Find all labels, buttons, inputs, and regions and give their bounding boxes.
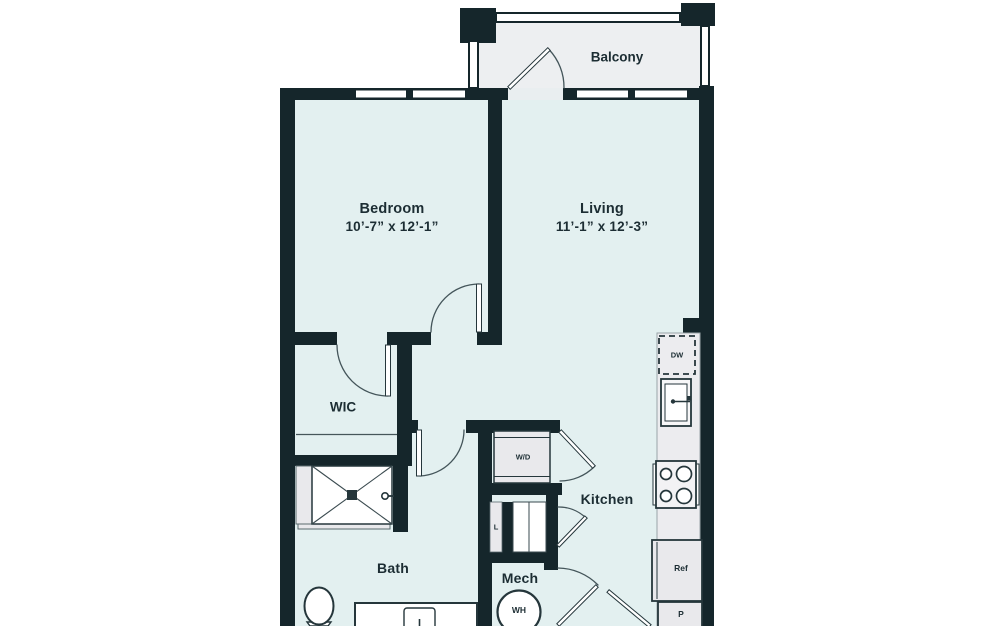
- wic-label: WIC: [330, 400, 356, 415]
- living-label: Living: [556, 201, 648, 218]
- floorplan-graphics: [0, 0, 998, 626]
- bedroom-window: [356, 88, 465, 100]
- floorplan-canvas: Balcony Bedroom 10’-7” x 12’-1” Living 1…: [0, 0, 998, 626]
- wall-top: [280, 88, 356, 100]
- washer-dryer-label: W/D: [516, 453, 531, 462]
- balcony-right-window: [701, 26, 709, 86]
- burner: [677, 489, 692, 504]
- wall-left: [280, 88, 295, 626]
- living-window: [577, 88, 687, 100]
- living-dimensions: 11’-1” x 12’-3”: [556, 218, 648, 235]
- linen-closet-label: L: [494, 523, 499, 532]
- living-label-block: Living 11’-1” x 12’-3”: [556, 201, 648, 235]
- balcony-floor: [478, 22, 700, 88]
- dishwasher-label: DW: [671, 351, 684, 360]
- kitchen-counter: [652, 333, 702, 626]
- bath-label: Bath: [377, 560, 409, 576]
- balcony-left-window: [469, 41, 478, 88]
- balcony-label: Balcony: [591, 50, 644, 65]
- balcony-door-threshold: [508, 88, 563, 100]
- pantry-label: P: [678, 609, 684, 619]
- shower: [296, 466, 394, 529]
- kitchen-label: Kitchen: [581, 491, 634, 507]
- bedroom-dimensions: 10’-7” x 12’-1”: [345, 218, 438, 235]
- bedroom-label-block: Bedroom 10’-7” x 12’-1”: [345, 201, 438, 235]
- burner: [661, 469, 672, 480]
- stove: [653, 461, 699, 508]
- toilet: [305, 588, 334, 626]
- refrigerator-label: Ref: [674, 563, 688, 573]
- burner: [661, 491, 672, 502]
- kitchen-sink: [661, 379, 692, 426]
- burner: [677, 467, 692, 482]
- vanity-sink: [355, 603, 477, 626]
- balcony-railing: [496, 13, 680, 22]
- bedroom-label: Bedroom: [345, 201, 438, 218]
- shower-drain: [347, 490, 357, 500]
- hall-closet: [513, 502, 546, 552]
- mech-label: Mech: [502, 570, 539, 586]
- water-heater-label: WH: [512, 605, 526, 615]
- wall-bedroom-living: [488, 96, 502, 345]
